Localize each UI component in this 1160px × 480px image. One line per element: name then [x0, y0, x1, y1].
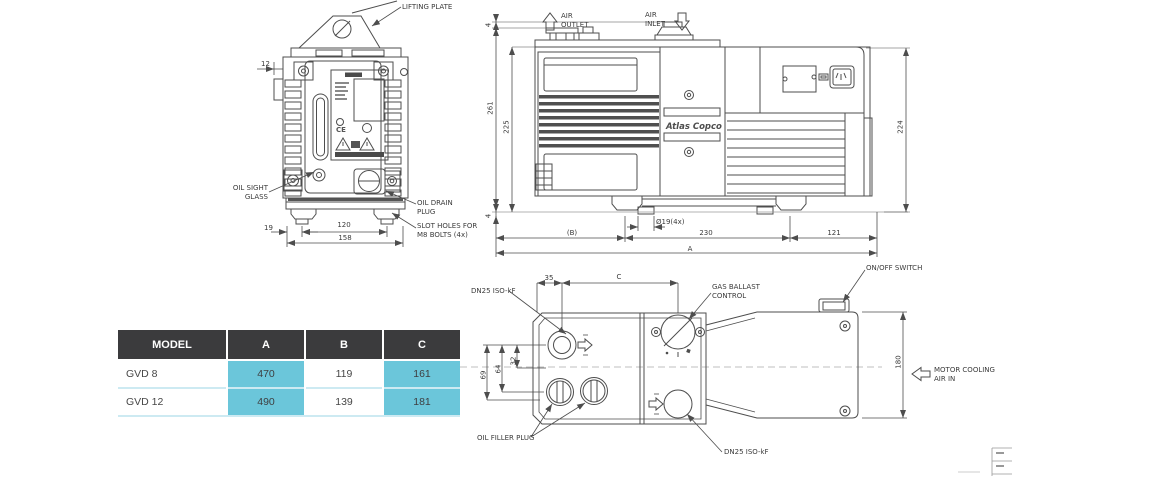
- flow-arrow-icon: [649, 398, 663, 410]
- top-view: [460, 270, 930, 452]
- dim-69: 69: [480, 371, 489, 380]
- oil-filler-label: OIL FILLER PLUG: [477, 434, 534, 443]
- fuse-holder-icon: [819, 74, 828, 80]
- on-off-switch: [819, 299, 849, 312]
- atlas-copco-logo: Atlas Copco: [665, 122, 722, 132]
- model-dimension-table: MODEL A B C GVD 8 470 119 161 GVD 12 490…: [118, 330, 460, 417]
- dim-158: 158: [338, 234, 351, 243]
- nameplate: [331, 70, 388, 160]
- dim-225: 225: [503, 120, 512, 133]
- dim-12: 12: [261, 60, 270, 69]
- dim-19: 19: [264, 224, 273, 233]
- front-view: [257, 1, 416, 247]
- dim-121: 121: [827, 229, 840, 238]
- motor-cooling-label: MOTOR COOLING AIR IN: [934, 366, 995, 384]
- dn25-top-label: DN25 ISO-kF: [471, 287, 516, 296]
- right-fins: [385, 80, 401, 196]
- col-c: C: [383, 330, 460, 360]
- dim-bolt-holes: Ø19(4x): [656, 218, 684, 227]
- value-c: 181: [383, 388, 460, 416]
- on-off-switch-label: ON/OFF SWITCH: [866, 264, 922, 273]
- dim-180: 180: [895, 355, 904, 368]
- dim-A: A: [688, 245, 693, 254]
- dim-B: (B): [567, 229, 577, 238]
- air-inlet-label: AIR INLET: [645, 11, 665, 29]
- dim-4-bottom: 4: [485, 214, 494, 218]
- dim-C: C: [617, 273, 622, 282]
- air-outlet-arrow-icon: [543, 13, 557, 30]
- dim-230: 230: [699, 229, 712, 238]
- col-model: MODEL: [118, 330, 227, 360]
- pump-fins: [539, 95, 659, 148]
- air-outlet-label: AIR OUTLET: [561, 12, 589, 30]
- model-cell: GVD 12: [118, 388, 227, 416]
- title-block-fragment: [958, 448, 1012, 476]
- ce-mark: CE: [336, 126, 346, 134]
- model-cell: GVD 8: [118, 360, 227, 388]
- table-row: GVD 12 490 139 181: [118, 388, 460, 416]
- dim-261: 261: [487, 101, 496, 114]
- dim-32: 32: [510, 357, 519, 366]
- table-row: GVD 8 470 119 161: [118, 360, 460, 388]
- value-a: 490: [227, 388, 305, 416]
- side-view: Atlas Copco: [492, 13, 910, 257]
- table-header-row: MODEL A B C: [118, 330, 460, 360]
- dim-224: 224: [897, 120, 906, 133]
- value-a: 470: [227, 360, 305, 388]
- col-a: A: [227, 330, 305, 360]
- lifting-plate-label: LIFTING PLATE: [402, 3, 452, 12]
- top-dimensions: [483, 270, 907, 452]
- dim-35: 35: [545, 274, 554, 283]
- slot-holes-label: SLOT HOLES FOR M8 BOLTS (4x): [417, 222, 477, 240]
- oil-sight-glass: [313, 169, 325, 181]
- dim-4-top: 4: [485, 23, 494, 27]
- dim-64: 64: [495, 365, 504, 374]
- motor-cooling-arrow-icon: [912, 368, 930, 381]
- flow-arrow-icon: [578, 339, 592, 351]
- col-b: B: [305, 330, 383, 360]
- oil-sight-glass-label: OIL SIGHT GLASS: [222, 184, 268, 202]
- electrical-panel: [783, 66, 854, 92]
- side-dimensions: [492, 14, 910, 257]
- value-c: 161: [383, 360, 460, 388]
- value-b: 119: [305, 360, 383, 388]
- oil-filler-plugs: [547, 378, 608, 406]
- dim-120: 120: [337, 221, 350, 230]
- value-b: 139: [305, 388, 383, 416]
- gas-ballast-label: GAS BALLAST CONTROL: [712, 283, 760, 301]
- technical-drawing-page: Atlas Copco: [0, 0, 1160, 480]
- dn25-bottom-label: DN25 ISO-kF: [724, 448, 769, 457]
- gas-ballast-control: [652, 315, 705, 357]
- dn25-port-bottom: [649, 390, 692, 418]
- oil-drain-plug-label: OIL DRAIN PLUG: [417, 199, 453, 217]
- dn25-port-top: [548, 331, 592, 359]
- motor-fins: [727, 121, 845, 193]
